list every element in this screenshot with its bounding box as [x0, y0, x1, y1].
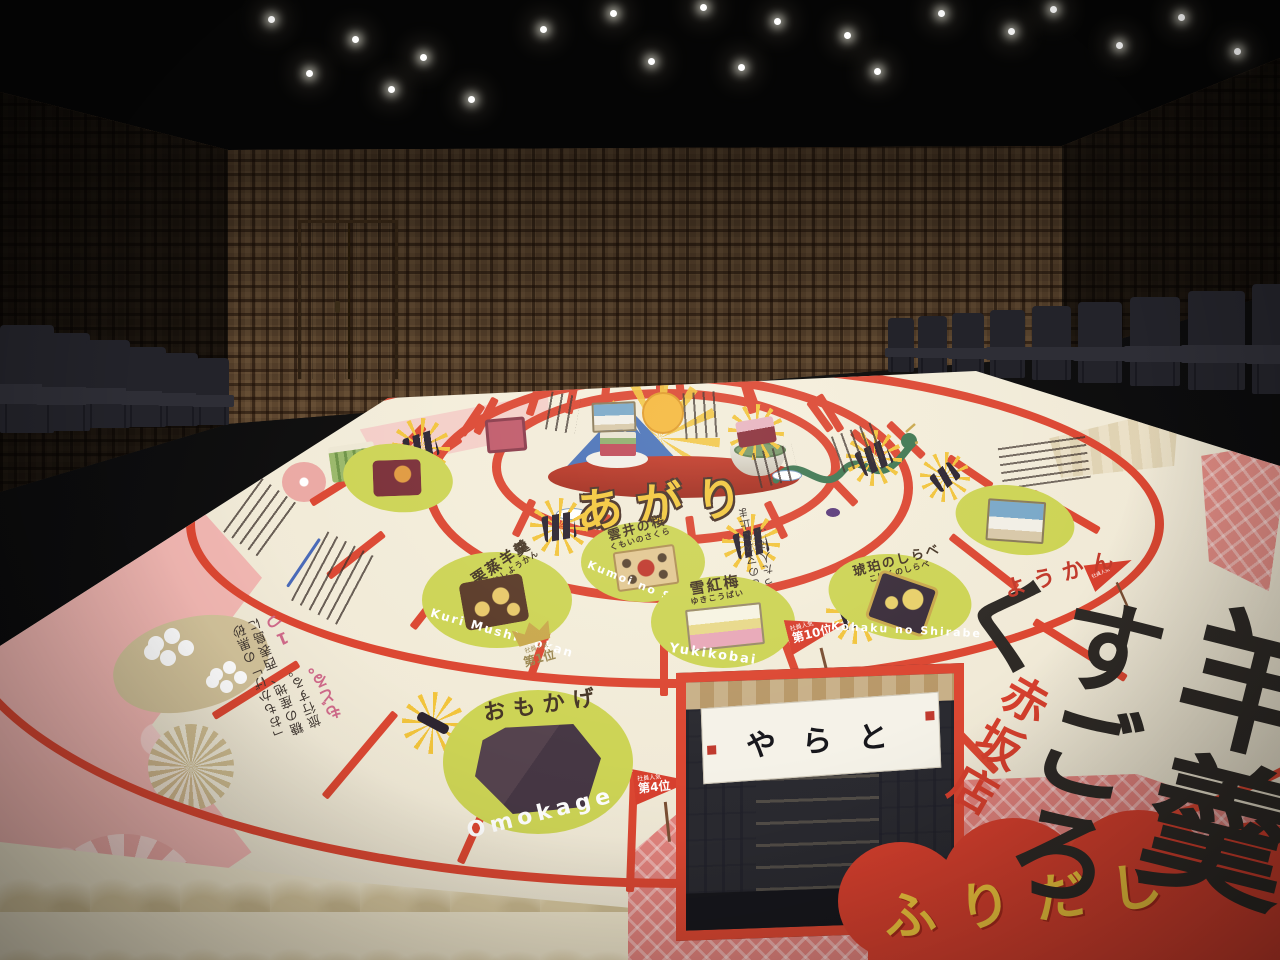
ceiling-light	[938, 10, 945, 17]
pennant-pole	[663, 802, 670, 842]
noren-text: やらと	[727, 710, 914, 767]
door-handle	[335, 301, 340, 313]
yokan-sticks-icon	[530, 498, 588, 556]
yokan-slice	[600, 432, 636, 456]
instruction-text-tile	[682, 391, 723, 440]
blue-box-sweet-icon	[591, 401, 636, 433]
chair	[1130, 297, 1180, 386]
sun	[642, 392, 684, 434]
tile-omokage: おもかげ Omokage	[443, 690, 633, 834]
ceiling-light	[610, 10, 617, 17]
eggplant-motif	[826, 508, 840, 517]
ceiling-light	[1116, 42, 1123, 49]
chair	[952, 313, 984, 376]
door-seam	[348, 223, 350, 379]
ceiling-light	[388, 86, 395, 93]
ceiling-light	[306, 70, 313, 77]
tile-name: 雪紅梅 ゆきこうばい	[687, 573, 744, 606]
chair	[1188, 291, 1245, 390]
chair	[42, 333, 90, 431]
exhibition-room-photo: あがり	[0, 0, 1280, 960]
dark-red-sweet-illustration	[372, 459, 421, 497]
chair	[888, 318, 914, 372]
tile-yukikobai: 雪紅梅 ゆきこうばい Yukikobai	[651, 576, 795, 668]
chair	[126, 347, 166, 427]
ceiling-light	[540, 26, 547, 33]
chair	[990, 310, 1025, 378]
chair	[162, 353, 198, 426]
ceiling-light	[420, 54, 427, 61]
instruction-stop-tile: このマスに止まった人は…	[734, 484, 829, 590]
noren-seal	[707, 746, 716, 756]
ceiling-light	[468, 96, 475, 103]
red-square-sweet-icon	[485, 416, 528, 453]
chair	[918, 316, 947, 374]
board-title: 羊羹 すごろく	[937, 508, 1280, 960]
chair	[86, 340, 130, 428]
ceiling-light	[268, 16, 275, 23]
ceiling-light	[648, 58, 655, 65]
chair	[196, 358, 229, 425]
ceiling-light	[1178, 14, 1185, 21]
chair	[1078, 302, 1122, 383]
ceiling-light	[774, 18, 781, 25]
ceiling-light	[1008, 28, 1015, 35]
ceiling-light	[874, 68, 881, 75]
yokan-sticks-icon	[920, 452, 970, 502]
ceiling-light	[700, 4, 707, 11]
wooden-door	[298, 220, 398, 379]
ceiling-light	[1050, 6, 1057, 13]
ceiling-light	[1234, 48, 1241, 55]
chair	[1252, 284, 1280, 394]
ceiling-light	[738, 64, 745, 71]
ceiling-light	[352, 36, 359, 43]
ceiling-light	[844, 32, 851, 39]
chair	[1032, 306, 1071, 380]
